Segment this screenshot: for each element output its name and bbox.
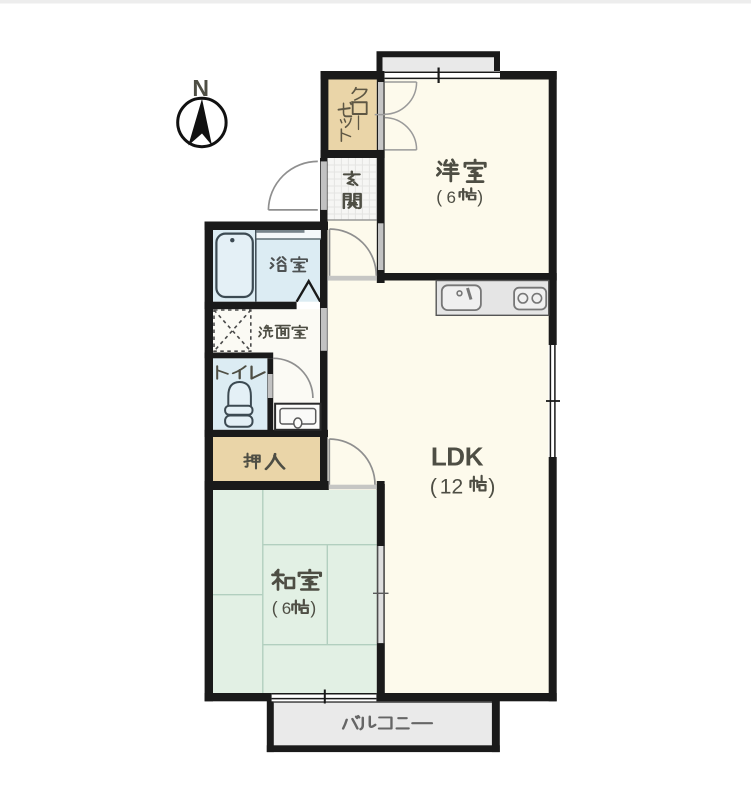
svg-text:(: ( <box>272 598 278 618</box>
svg-text:K: K <box>465 441 484 471</box>
svg-text:N: N <box>192 75 209 101</box>
svg-text:): ) <box>310 598 316 618</box>
svg-text:6: 6 <box>447 188 456 207</box>
svg-text:6: 6 <box>282 599 291 618</box>
svg-text:(: ( <box>430 475 438 499</box>
svg-text:): ) <box>488 475 495 499</box>
svg-text:D: D <box>446 441 465 471</box>
svg-text:12: 12 <box>440 476 463 499</box>
svg-text:(: ( <box>436 187 442 207</box>
svg-text:): ) <box>477 187 483 207</box>
svg-text:L: L <box>431 441 447 471</box>
